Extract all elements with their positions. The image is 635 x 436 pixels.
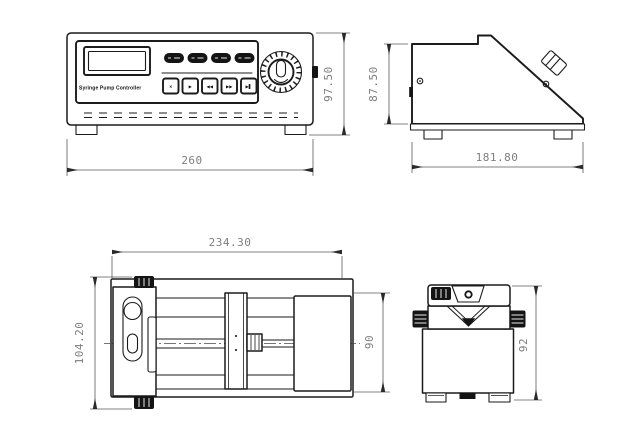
slope-connector — [541, 50, 567, 76]
end-foot-right — [489, 393, 510, 402]
side-knob-right — [510, 311, 526, 328]
side-foot-left — [424, 130, 442, 139]
side-base — [411, 124, 585, 130]
bracket-hole — [465, 291, 471, 297]
clamp-knob-bottom — [134, 396, 154, 409]
dim-pump-body-width: 90 — [354, 293, 390, 392]
svg-text:234.30: 234.30 — [209, 236, 252, 249]
dimension-drawing: Syringe Pump Controller × ▶ ◀◀ — [0, 0, 635, 436]
controller-side-view: 87.50 181.80 — [367, 36, 585, 174]
pump-top-view: 234.30 104.20 90 — [73, 236, 390, 409]
dim-side-height: 87.50 — [367, 44, 408, 124]
svg-text:104.20: 104.20 — [73, 322, 86, 365]
dim-pump-length: 234.30 — [112, 236, 342, 278]
end-foot-left — [426, 393, 446, 402]
key-forward-glyph: ▶▶ — [226, 84, 233, 89]
pump-end-view: 92 — [413, 285, 543, 402]
bracket-knob — [431, 287, 451, 300]
bottom-connector-icon — [460, 393, 476, 399]
key-buttons: × ▶ ◀◀ ▶▶ ▶▌ — [163, 79, 257, 94]
power-switch-icon — [312, 66, 318, 78]
front-foot-left — [76, 125, 97, 135]
svg-text:87.50: 87.50 — [367, 66, 380, 102]
side-knob-left — [413, 311, 429, 328]
svg-text:181.80: 181.80 — [476, 151, 519, 164]
front-foot-right — [285, 125, 306, 135]
panel-label: Syringe Pump Controller — [79, 86, 141, 92]
dim-front-width: 260 — [67, 139, 313, 176]
dim-side-depth: 181.80 — [412, 142, 583, 173]
svg-text:90: 90 — [363, 335, 376, 349]
motor-block — [294, 296, 351, 391]
svg-text:97.50: 97.50 — [322, 66, 335, 102]
side-foot-right — [554, 130, 572, 139]
key-rewind-glyph: ◀◀ — [206, 84, 213, 89]
svg-text:92: 92 — [517, 338, 530, 352]
key-stop-glyph: × — [169, 84, 173, 89]
clamp-knob-top — [134, 276, 154, 288]
pump-body — [423, 329, 514, 393]
drawing-canvas: Syringe Pump Controller × ▶ ◀◀ — [0, 0, 635, 436]
svg-text:260: 260 — [181, 154, 202, 167]
dim-front-height: 97.50 — [309, 33, 350, 135]
controller-front-view: Syringe Pump Controller × ▶ ◀◀ — [67, 33, 350, 176]
screw-coupling — [247, 334, 262, 351]
dim-end-height: 92 — [512, 286, 542, 400]
side-port-icon — [409, 87, 413, 97]
